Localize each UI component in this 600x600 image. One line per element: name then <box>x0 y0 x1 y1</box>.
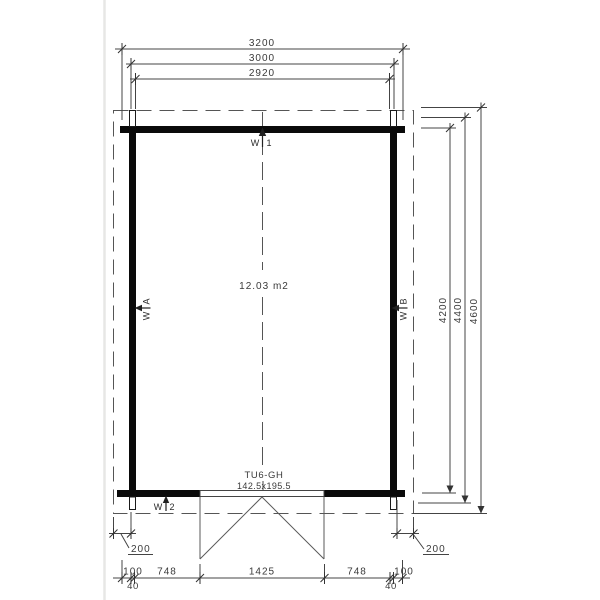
floor-plan-page: TU6-GH 142.5x195.5 12.03 m2 3200 3000 29… <box>0 0 600 600</box>
top-dimensions: 3200 3000 2920 <box>115 38 410 120</box>
dim-offset-right: 200 <box>426 544 446 555</box>
wall-label-left-suffix: A <box>142 298 152 304</box>
wall-label-right-suffix: B <box>399 298 409 304</box>
offset-dimension-left: 200 <box>109 512 153 555</box>
door-code-label: TU6-GH <box>245 470 284 481</box>
roof-overhang-outline <box>114 111 414 514</box>
wall-label-left: W A <box>135 298 152 320</box>
door-symbol: TU6-GH 142.5x195.5 <box>200 470 324 559</box>
dim-height-overall: 4600 <box>469 298 480 324</box>
dim-width-inner: 2920 <box>249 68 275 79</box>
wall-label-bottom-suffix: 2 <box>170 502 175 512</box>
dim-offset-left: 200 <box>131 544 151 555</box>
door-swing-lines <box>200 497 324 559</box>
area-label: 12.03 m2 <box>239 281 289 292</box>
right-dimensions: 4200 4400 4600 <box>413 103 487 514</box>
door-opening <box>200 491 324 497</box>
dim-width-overall: 3200 <box>249 38 275 49</box>
dim-bottom-overhang-left: 100 <box>123 567 143 578</box>
wall-label-bottom: W 2 <box>154 496 175 513</box>
dim-wall-thickness-right: 40 <box>385 581 397 592</box>
bottom-dimensions: 100 748 1425 748 100 40 40 <box>113 560 414 592</box>
wall-left <box>129 126 136 497</box>
wall-label-top-suffix: 1 <box>267 138 272 148</box>
dim-bottom-left-pier: 748 <box>157 567 177 578</box>
wall-label-right-prefix: W <box>399 311 409 320</box>
dim-height-outer-wall: 4400 <box>453 297 464 323</box>
dim-width-outer-wall: 3000 <box>249 53 275 64</box>
wall-label-left-prefix: W <box>142 311 152 320</box>
wall-label-bottom-prefix: W <box>154 502 163 512</box>
dim-wall-thickness-left: 40 <box>127 581 139 592</box>
wall-label-top-prefix: W <box>251 138 260 148</box>
floor-plan-drawing: TU6-GH 142.5x195.5 12.03 m2 3200 3000 29… <box>0 0 600 600</box>
dim-height-inner: 4200 <box>438 297 449 323</box>
dim-bottom-overhang-right: 100 <box>394 567 414 578</box>
left-arrow-icon <box>135 305 151 311</box>
up-arrow-icon <box>163 496 169 512</box>
walls <box>117 111 405 510</box>
door-size-label: 142.5x195.5 <box>237 481 291 491</box>
wall-right <box>390 126 397 497</box>
offset-dimension-right: 200 <box>391 500 449 555</box>
dim-bottom-right-pier: 748 <box>347 567 367 578</box>
dim-bottom-door-opening: 1425 <box>249 567 275 578</box>
